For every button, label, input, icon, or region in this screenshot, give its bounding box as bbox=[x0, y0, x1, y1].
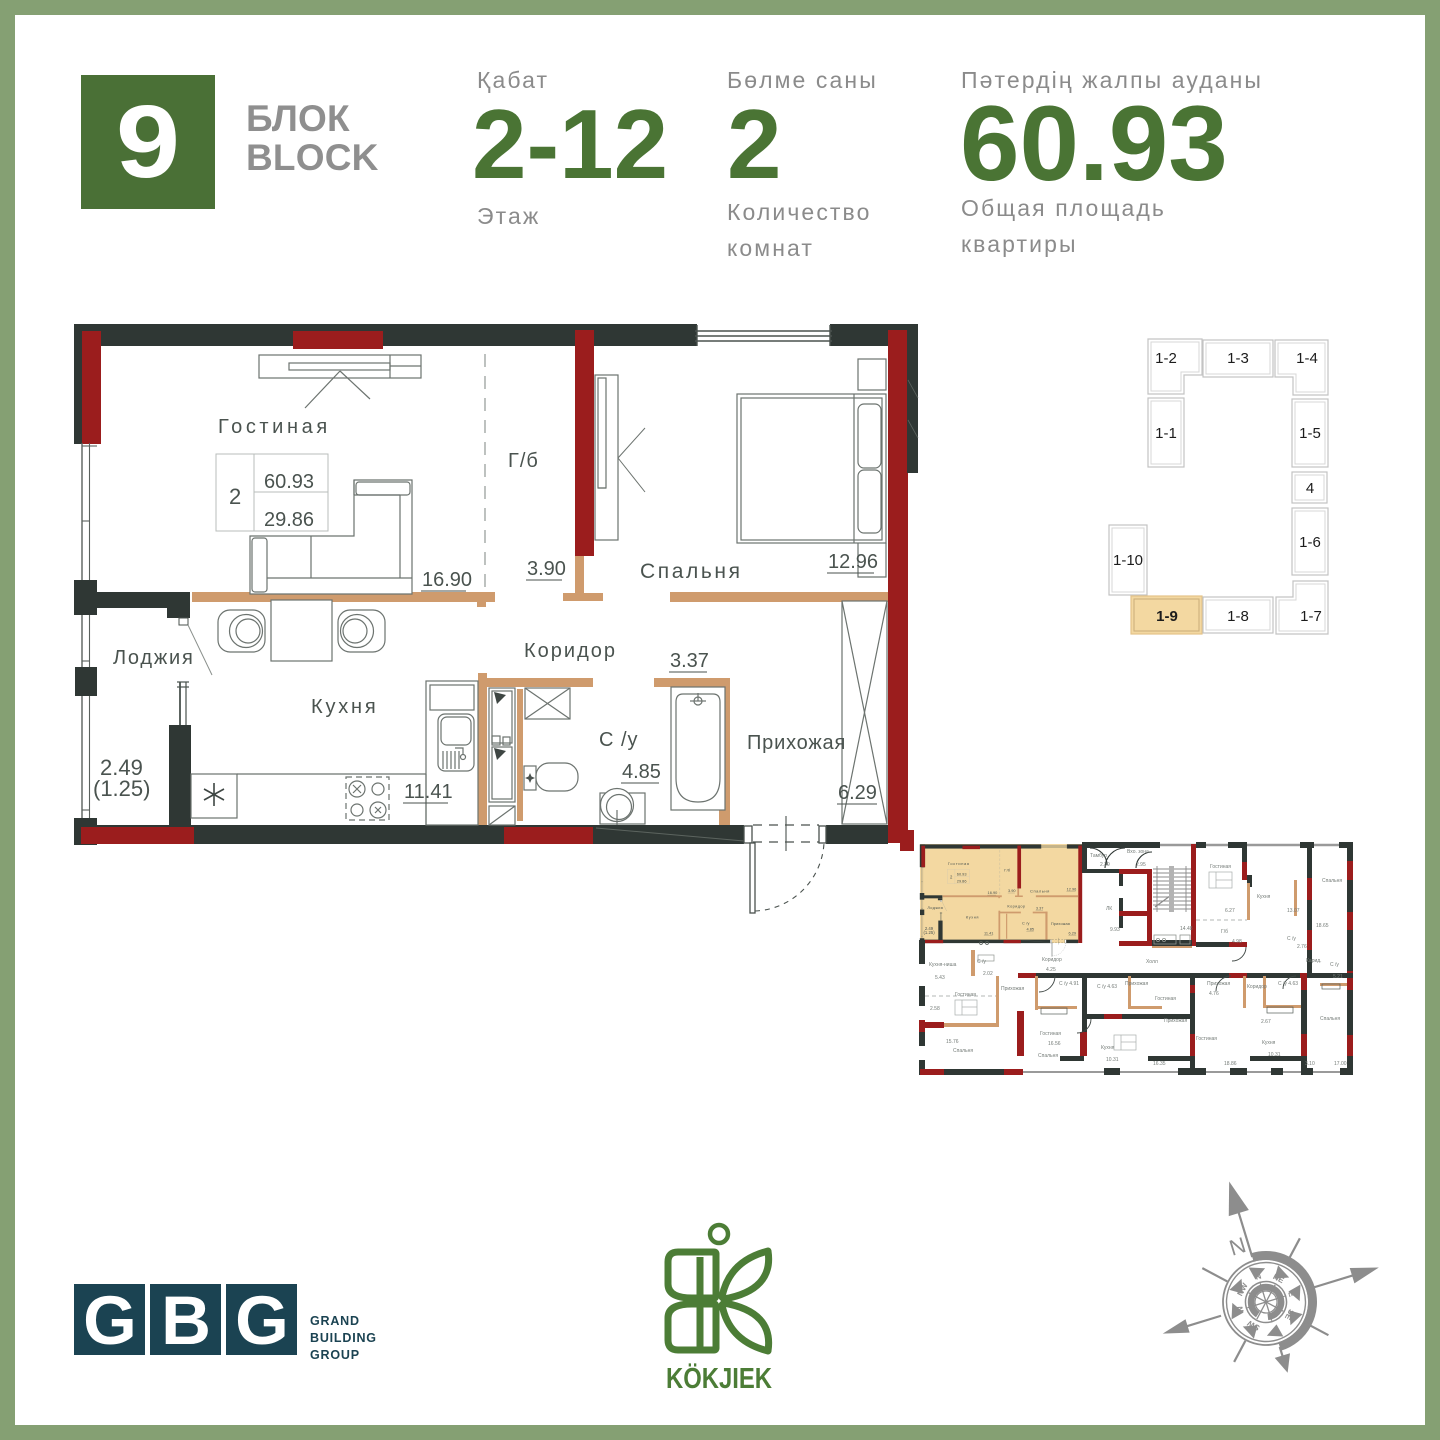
svg-text:5.43: 5.43 bbox=[935, 975, 945, 981]
svg-text:Карид.: Карид. bbox=[1306, 958, 1322, 964]
svg-text:Вхо. зона: Вхо. зона bbox=[1127, 849, 1149, 855]
svg-text:4.25: 4.25 bbox=[1046, 967, 1056, 973]
svg-text:С /у: С /у bbox=[1330, 962, 1339, 968]
svg-text:Прихожая: Прихожая bbox=[747, 732, 846, 754]
svg-text:Гостиная: Гостиная bbox=[218, 416, 331, 438]
svg-text:60.93: 60.93 bbox=[264, 471, 314, 493]
svg-text:1-6: 1-6 bbox=[1299, 534, 1321, 551]
svg-text:Прихожая: Прихожая bbox=[1207, 981, 1230, 987]
svg-text:Кухня-ниша: Кухня-ниша bbox=[929, 962, 957, 968]
svg-text:12.96: 12.96 bbox=[828, 551, 878, 573]
svg-text:Кухня: Кухня bbox=[311, 696, 379, 718]
svg-text:2: 2 bbox=[229, 484, 241, 509]
svg-text:GROUP: GROUP bbox=[310, 1348, 360, 1362]
svg-text:С /у: С /у bbox=[1287, 936, 1296, 942]
svg-text:С /у 4.63: С /у 4.63 bbox=[1278, 981, 1298, 987]
svg-text:E: E bbox=[1286, 1290, 1296, 1298]
svg-text:KÖKJIEK: KÖKJIEK bbox=[666, 1362, 772, 1395]
svg-text:Г/б: Г/б bbox=[1221, 929, 1228, 935]
svg-text:Спальня: Спальня bbox=[640, 560, 743, 583]
svg-text:1-7: 1-7 bbox=[1300, 608, 1322, 625]
svg-text:BUILDING: BUILDING bbox=[310, 1331, 377, 1345]
svg-text:Коридор: Коридор bbox=[524, 640, 617, 662]
svg-text:B: B bbox=[161, 1282, 211, 1359]
svg-text:4.85: 4.85 bbox=[622, 761, 661, 783]
svg-text:GRAND: GRAND bbox=[310, 1314, 360, 1328]
svg-text:Тамбур: Тамбур bbox=[1090, 853, 1107, 859]
svg-text:2.58: 2.58 bbox=[930, 1006, 940, 1012]
svg-text:N: N bbox=[1254, 1271, 1262, 1281]
svg-text:Гостиная: Гостиная bbox=[955, 992, 976, 998]
svg-text:2.39: 2.39 bbox=[1100, 862, 1110, 868]
svg-text:Прихожая: Прихожая bbox=[1125, 981, 1148, 987]
svg-text:3.10: 3.10 bbox=[1305, 1061, 1315, 1067]
svg-text:Спальня: Спальня bbox=[1320, 1016, 1340, 1022]
svg-text:1-3: 1-3 bbox=[1227, 350, 1249, 367]
svg-text:6.27: 6.27 bbox=[1225, 908, 1235, 914]
svg-text:W: W bbox=[1235, 1304, 1246, 1314]
svg-text:9.93: 9.93 bbox=[1110, 927, 1120, 933]
svg-text:2.95: 2.95 bbox=[1136, 862, 1146, 868]
svg-text:2.67: 2.67 bbox=[1261, 1019, 1271, 1025]
svg-text:Кухня: Кухня bbox=[1257, 894, 1271, 900]
svg-text:4.76: 4.76 bbox=[1209, 991, 1219, 997]
svg-text:Спальня: Спальня bbox=[1322, 878, 1342, 884]
svg-text:29.86: 29.86 bbox=[264, 509, 314, 531]
svg-text:16.35: 16.35 bbox=[1153, 1061, 1166, 1067]
svg-text:3.90: 3.90 bbox=[527, 558, 566, 580]
svg-text:G: G bbox=[83, 1282, 137, 1359]
svg-text:2.76: 2.76 bbox=[1297, 944, 1307, 950]
svg-text:1-8: 1-8 bbox=[1227, 608, 1249, 625]
svg-text:1-1: 1-1 bbox=[1155, 425, 1177, 442]
svg-text:1-2: 1-2 bbox=[1155, 350, 1177, 367]
svg-text:4: 4 bbox=[1306, 480, 1314, 497]
svg-text:15.76: 15.76 bbox=[946, 1039, 959, 1045]
svg-text:10.31: 10.31 bbox=[1268, 1052, 1281, 1058]
svg-text:2.02: 2.02 bbox=[983, 971, 993, 977]
svg-text:G: G bbox=[235, 1282, 289, 1359]
svg-text:Гостиная: Гостиная bbox=[1210, 864, 1231, 870]
svg-text:13.07: 13.07 bbox=[1287, 908, 1300, 914]
svg-text:Кухня: Кухня bbox=[1101, 1045, 1115, 1051]
svg-text:Коридор: Коридор bbox=[1042, 957, 1062, 963]
svg-text:Г/б: Г/б bbox=[508, 450, 539, 472]
svg-text:1-5: 1-5 bbox=[1299, 425, 1321, 442]
svg-text:Холл: Холл bbox=[1146, 959, 1158, 965]
svg-text:4.98: 4.98 bbox=[1232, 939, 1242, 945]
svg-text:С /у: С /у bbox=[599, 729, 639, 751]
svg-text:17.00: 17.00 bbox=[1334, 1061, 1347, 1067]
svg-text:С /у 4.91: С /у 4.91 bbox=[1059, 981, 1079, 987]
svg-text:18.86: 18.86 bbox=[1224, 1061, 1237, 1067]
svg-text:Лоджия: Лоджия bbox=[113, 647, 195, 669]
svg-text:3.37: 3.37 bbox=[670, 650, 709, 672]
svg-text:С /у 4.63: С /у 4.63 bbox=[1097, 984, 1117, 990]
svg-text:ЛК: ЛК bbox=[1106, 906, 1112, 912]
svg-text:Спальня: Спальня bbox=[953, 1048, 973, 1054]
svg-text:Прихожая: Прихожая bbox=[1001, 986, 1024, 992]
svg-text:Спальня: Спальня bbox=[1038, 1053, 1058, 1059]
svg-text:1-4: 1-4 bbox=[1296, 350, 1318, 367]
svg-text:6.29: 6.29 bbox=[838, 782, 877, 804]
svg-text:16.90: 16.90 bbox=[422, 569, 472, 591]
svg-text:Коридор: Коридор bbox=[1247, 984, 1267, 990]
svg-text:1-10: 1-10 bbox=[1113, 552, 1143, 569]
svg-text:14.48: 14.48 bbox=[1180, 926, 1193, 932]
svg-text:5.21: 5.21 bbox=[1333, 974, 1343, 980]
svg-text:16.56: 16.56 bbox=[1048, 1041, 1061, 1047]
svg-text:10.31: 10.31 bbox=[1106, 1057, 1119, 1063]
svg-text:Кухня: Кухня bbox=[1262, 1040, 1276, 1046]
svg-text:18.65: 18.65 bbox=[1316, 923, 1329, 929]
svg-text:1-9: 1-9 bbox=[1156, 608, 1178, 625]
svg-text:Прихожая: Прихожая bbox=[1164, 1018, 1187, 1024]
svg-text:(1.25): (1.25) bbox=[93, 776, 150, 801]
svg-text:Гостиная: Гостиная bbox=[1155, 996, 1176, 1002]
svg-text:С /у: С /у bbox=[977, 959, 986, 965]
svg-text:Гостиная: Гостиная bbox=[1196, 1036, 1217, 1042]
svg-text:11.41: 11.41 bbox=[404, 781, 453, 803]
svg-text:Гостиная: Гостиная bbox=[1040, 1031, 1061, 1037]
